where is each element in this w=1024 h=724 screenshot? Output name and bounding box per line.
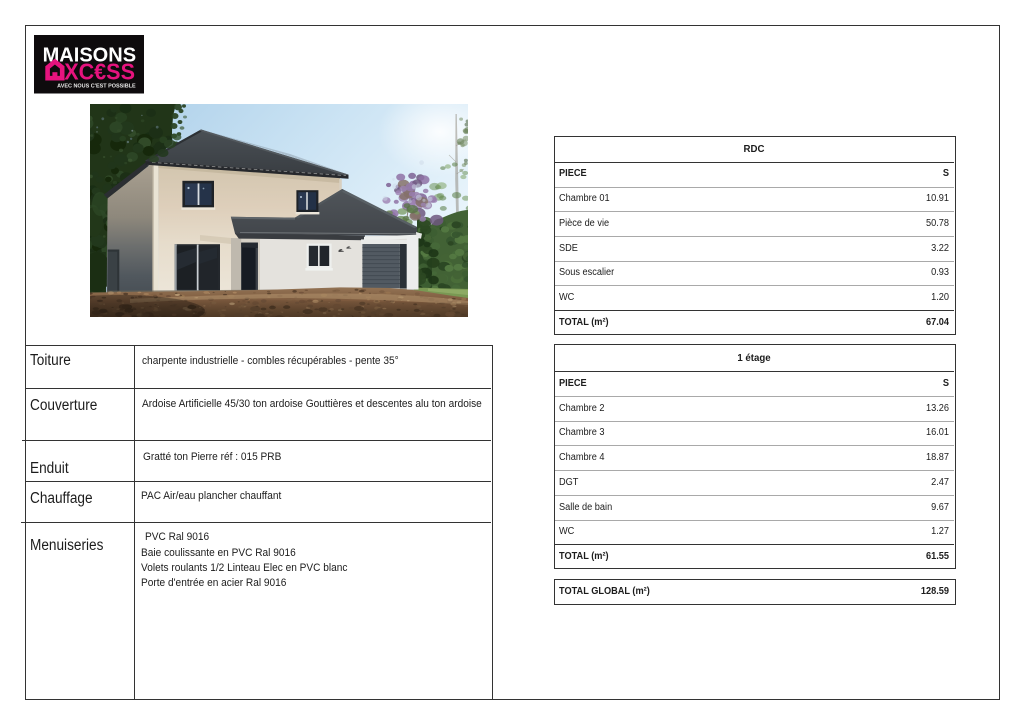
svg-text:XC€SS: XC€SS bbox=[64, 58, 135, 84]
svg-text:AVEC NOUS C'EST POSSIBLE: AVEC NOUS C'EST POSSIBLE bbox=[57, 83, 136, 89]
